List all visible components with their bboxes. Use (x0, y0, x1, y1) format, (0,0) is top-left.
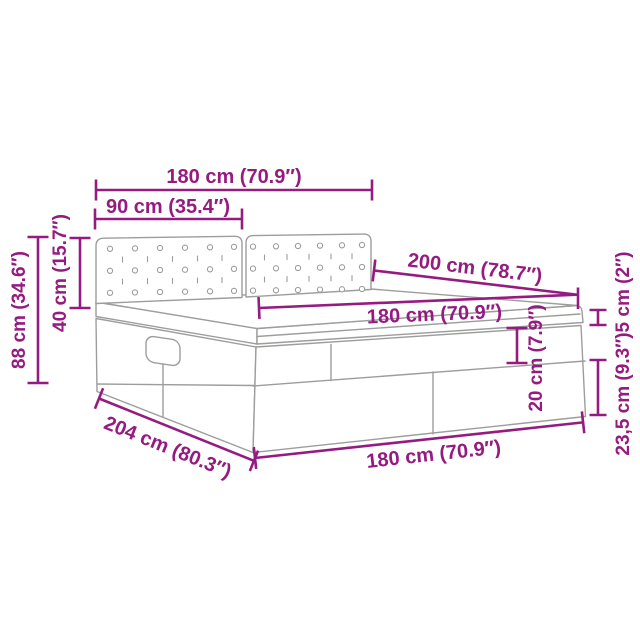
dimension-total-height (28, 237, 49, 383)
label-frame-lower-height: 23,5 cm (9.3″) (613, 332, 634, 455)
label-frame-upper-height: 20 cm (7.9″) (526, 304, 547, 411)
diagram-canvas: 180 cm (70.9″) 90 cm (35.4″) 200 cm (78.… (0, 0, 640, 640)
label-headboard-width: 180 cm (70.9″) (166, 166, 301, 188)
headboard-panel-left (96, 236, 242, 303)
label-panel-width: 90 cm (35.4″) (106, 196, 230, 218)
label-base-width: 180 cm (70.9″) (365, 436, 502, 472)
dimension-frame-lower (590, 360, 607, 415)
bed-dimension-diagram: 180 cm (70.9″) 90 cm (35.4″) 200 cm (78.… (0, 0, 640, 640)
label-topper-thickness: 5 cm (2″) (613, 252, 634, 333)
dimension-headboard-height (70, 238, 91, 308)
label-total-height: 88 cm (34.6″) (9, 251, 30, 369)
dimension-topper-thickness (590, 310, 607, 325)
headboard-panel-right (246, 234, 371, 297)
label-headboard-height: 40 cm (15.7″) (50, 214, 71, 332)
